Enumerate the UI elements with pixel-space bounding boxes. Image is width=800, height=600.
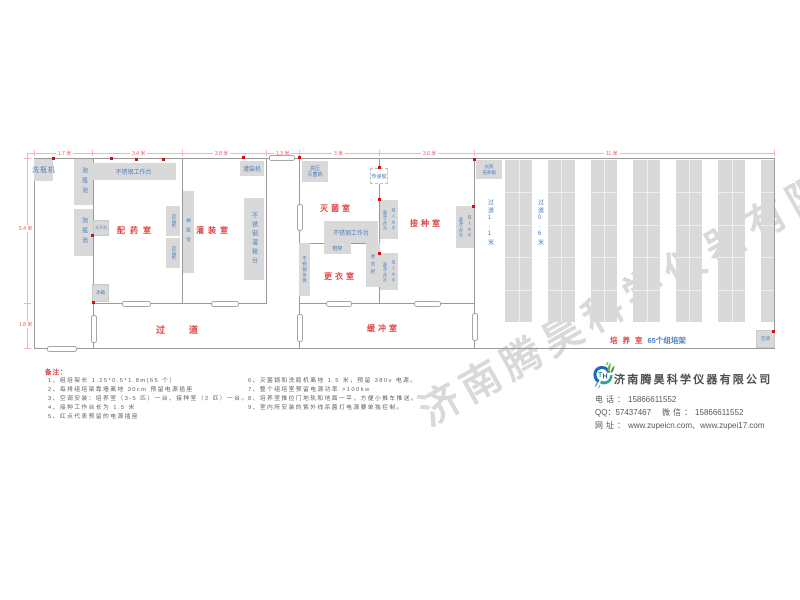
svg-text:H: H (603, 374, 608, 381)
